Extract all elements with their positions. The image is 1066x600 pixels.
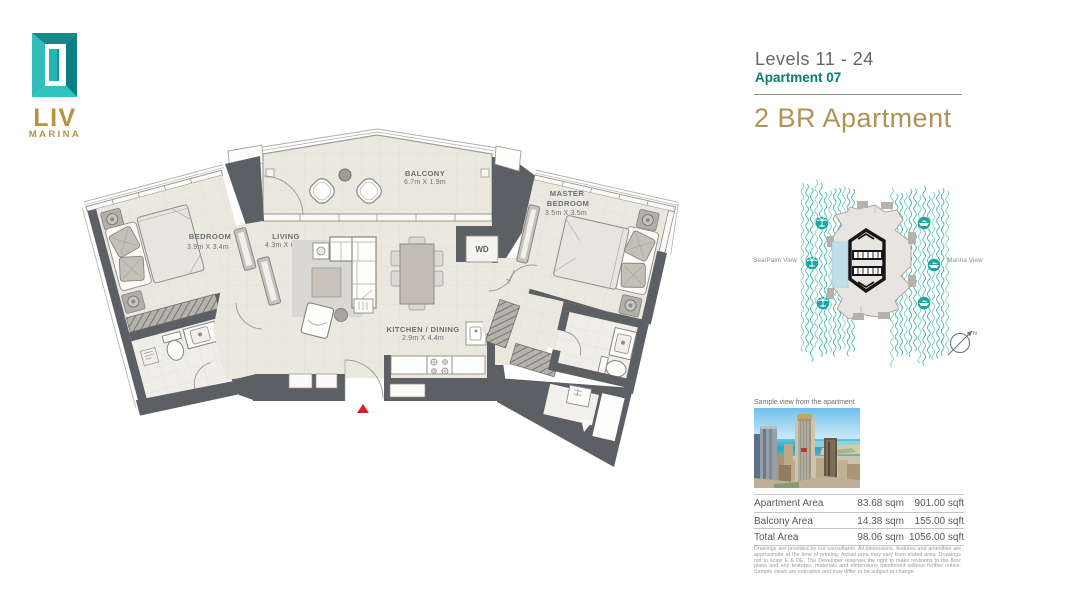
svg-text:WD: WD bbox=[475, 245, 489, 254]
svg-text:3.9m X 3.4m: 3.9m X 3.4m bbox=[187, 244, 229, 251]
svg-text:3.5m X 3.5m: 3.5m X 3.5m bbox=[545, 210, 587, 217]
svg-text:BALCONY: BALCONY bbox=[405, 169, 445, 178]
svg-text:BEDROOM: BEDROOM bbox=[189, 232, 231, 241]
svg-text:LIVING: LIVING bbox=[272, 232, 300, 241]
svg-text:MASTER: MASTER bbox=[550, 189, 585, 198]
svg-text:KITCHEN / DINING: KITCHEN / DINING bbox=[386, 325, 459, 334]
svg-text:N: N bbox=[973, 331, 977, 337]
svg-text:BEDROOM: BEDROOM bbox=[547, 199, 589, 208]
svg-text:2.9m X 4.4m: 2.9m X 4.4m bbox=[402, 335, 444, 342]
svg-text:6.7m X 1.9m: 6.7m X 1.9m bbox=[404, 179, 446, 186]
